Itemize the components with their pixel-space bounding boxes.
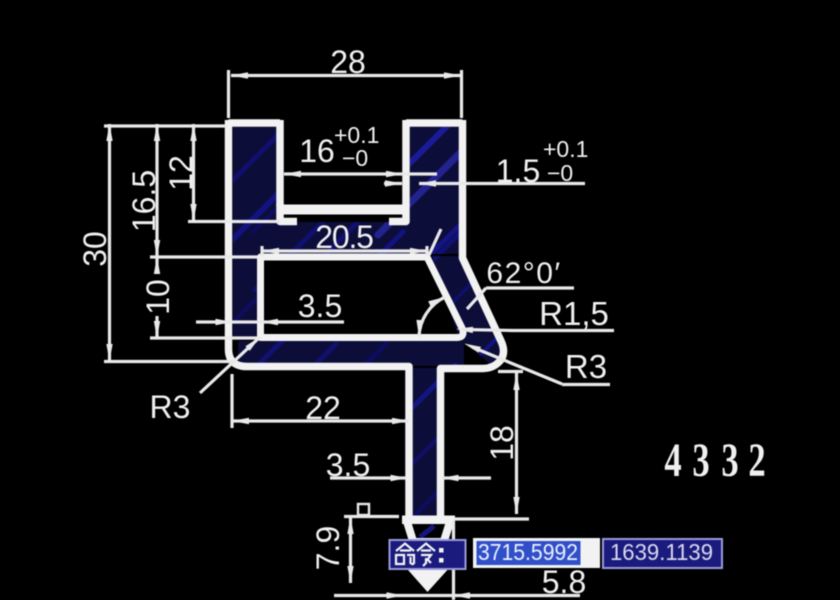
svg-text:22: 22 [305, 390, 341, 426]
svg-text:−0: −0 [342, 145, 368, 171]
svg-text:3: 3 [721, 435, 738, 488]
svg-text:R3: R3 [150, 389, 191, 425]
svg-text:−0: −0 [547, 160, 573, 186]
svg-text:2: 2 [748, 435, 765, 488]
svg-text:R3: R3 [565, 348, 607, 385]
svg-text:20.5: 20.5 [315, 219, 373, 255]
svg-text:5.8: 5.8 [542, 564, 586, 600]
svg-text:10: 10 [140, 279, 176, 315]
svg-text:1639.1139: 1639.1139 [610, 539, 713, 565]
svg-text:16: 16 [299, 133, 335, 169]
svg-text:3715.5992: 3715.5992 [478, 539, 578, 565]
svg-text:4: 4 [664, 435, 681, 488]
svg-text:16.5: 16.5 [126, 170, 162, 232]
svg-text:7.9: 7.9 [310, 526, 346, 570]
svg-text:3.5: 3.5 [326, 447, 370, 483]
svg-text:R1,5: R1,5 [539, 295, 609, 332]
svg-text:28: 28 [330, 44, 366, 80]
svg-text:+0.1: +0.1 [543, 136, 588, 162]
svg-text:12: 12 [163, 155, 199, 191]
svg-text:18: 18 [484, 425, 520, 461]
svg-text:3.5: 3.5 [298, 288, 342, 324]
svg-text:3: 3 [692, 435, 709, 488]
svg-text:62°0′: 62°0′ [486, 257, 561, 290]
svg-text:30: 30 [77, 231, 113, 267]
svg-text:1.5: 1.5 [496, 153, 540, 189]
